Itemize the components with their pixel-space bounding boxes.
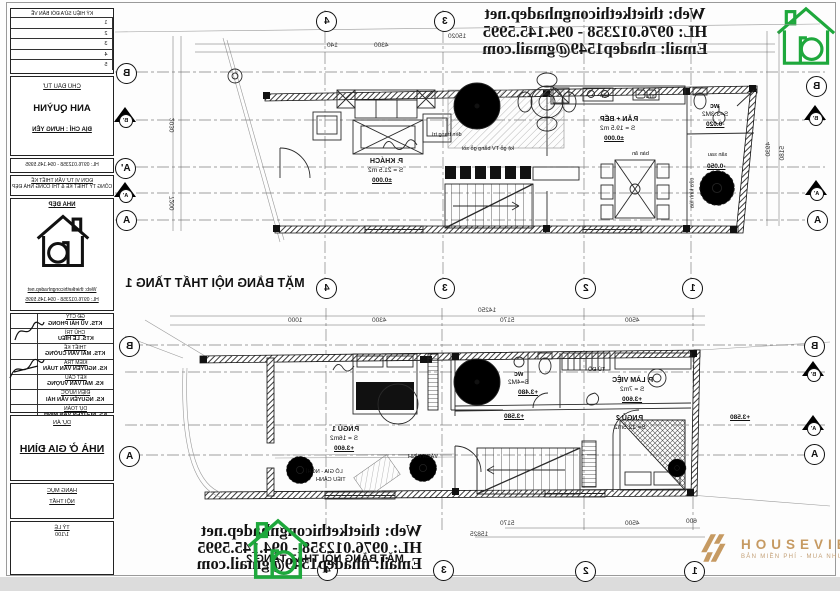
- houseviet-logo-icon: [698, 530, 734, 566]
- staircase: [445, 184, 533, 228]
- phone-strip-text: HL: 0976.012358 - 094.145.5995: [11, 159, 113, 168]
- dim-label: 5180: [780, 146, 787, 160]
- grid-bubble-label: 4: [324, 283, 330, 294]
- grid-bubble-label: 1: [690, 283, 696, 294]
- furniture-note: kệ gỗ TV bằng gỗ sồi: [462, 146, 514, 152]
- revision-table: KÝ HIỆU SỬA ĐỔI BẢN VẼ 1 2 3 4 5: [10, 8, 114, 74]
- room-label: P. LÀM VIỆC: [612, 377, 653, 385]
- grid-bubble-label: 4: [324, 16, 330, 27]
- room-area: S=4M2: [508, 379, 529, 387]
- category-value: NỘI THẤT: [11, 495, 113, 506]
- section-marker-label: A': [811, 426, 816, 432]
- grid-bubble-row: A: [119, 446, 140, 467]
- section-marker-label: A': [814, 191, 819, 197]
- project-box: DỰ ÁN NHÀ Ở GIA ĐÌNH: [10, 415, 114, 481]
- section-marker: A': [805, 180, 827, 198]
- grid-bubble-row: A: [807, 210, 828, 231]
- grid-bubble-col: 4: [316, 11, 337, 32]
- revision-row-number: 2: [100, 29, 113, 39]
- furniture-note: bàn ăn: [632, 151, 649, 157]
- courtyard-tree: [700, 171, 735, 206]
- grid-bubble-label: A: [814, 215, 821, 226]
- room-label: P.ĂN + BẾP: [600, 116, 638, 124]
- dim-label: 15020: [448, 34, 466, 41]
- dining-table-set: [601, 160, 669, 219]
- grid-bubble-label: 1: [692, 566, 698, 577]
- design-unit-label: ĐƠN VỊ TƯ VẤN THIẾT KẾ: [11, 176, 113, 184]
- green-house-logo-icon: [240, 517, 316, 581]
- furniture-note: rửa: [646, 94, 655, 100]
- grid-bubble-col: 4: [316, 278, 337, 299]
- section-marker: A': [114, 182, 136, 200]
- bottom-margin-band: [0, 577, 840, 591]
- grid-bubble-label: 2: [583, 566, 589, 577]
- grid-bubble-row: B: [806, 76, 827, 97]
- revision-row: 3: [11, 38, 113, 49]
- room-area: S = 16m2: [330, 435, 358, 443]
- grid-bubble-label: B: [811, 341, 818, 352]
- section-marker: B': [114, 107, 136, 125]
- grid-bubble-col: 2: [575, 278, 596, 299]
- room-label: sân sau: [708, 152, 727, 158]
- section-marker: B': [802, 361, 824, 379]
- dim-label: 15825: [470, 532, 488, 539]
- signature-scribble: [12, 316, 46, 346]
- section-marker-label: B': [813, 116, 818, 122]
- room-area: S = 19.5 m2: [600, 125, 635, 133]
- room-label: P. KHÁCH: [370, 158, 403, 166]
- level-marker: -0.050: [707, 163, 725, 171]
- room-label: LÔ GIA - NGHỈ: [306, 469, 343, 475]
- dim-label: 5170: [500, 521, 514, 528]
- signature-name: KTS. MAI VĂN CƯỜNG: [45, 351, 105, 358]
- grid-bubble-label: A: [123, 215, 130, 226]
- signature-name: KTS. VŨ HẢI PHONG: [48, 321, 102, 328]
- dim-label: 4500: [625, 521, 639, 528]
- phone-strip: HL: 0976.012358 - 094.145.5995: [10, 158, 114, 173]
- partition-note: VÁCH KÍNH: [408, 454, 438, 460]
- signature-name: KS. NGUYỄN VĂN TUẤN: [43, 366, 107, 373]
- section-marker-label: B': [811, 372, 816, 378]
- category-label: HẠNG MỤC: [11, 484, 113, 495]
- company-phone-line: HL: 0976.012358 - 094.145.5995: [11, 297, 113, 303]
- grid-bubble-row: B: [119, 336, 140, 357]
- grid-bubble-label: 2: [583, 283, 589, 294]
- dim-label: 4930: [766, 142, 773, 156]
- houseviet-watermark: HOUSEVIET BẢN MIỀN PHÍ - MUA NHƯ Ý: [698, 530, 840, 566]
- room-area: S= 12.5m2: [614, 424, 646, 432]
- project-label: DỰ ÁN: [11, 416, 113, 427]
- tv-shelf: [445, 166, 579, 180]
- level-marker: +3.600: [334, 445, 354, 453]
- room-area: S = 21.5 m2: [368, 167, 403, 175]
- floor-plan-tang-1: [115, 6, 840, 302]
- room-label: P.NGỦ 2: [616, 415, 643, 423]
- company-house-logo-icon: [36, 213, 90, 269]
- plan-title-tang-1: MẶT BẰNG NỘI THẤT TẦNG 1: [120, 277, 310, 291]
- grid-bubble-label: B: [123, 68, 130, 79]
- section-marker-label: A': [123, 193, 128, 199]
- level-marker: +3.600: [622, 396, 642, 404]
- grid-bubble-label: A: [811, 449, 818, 460]
- dim-label: 4300: [374, 43, 388, 50]
- spiral-stair-icon: [451, 354, 503, 410]
- design-unit-box: ĐƠN VỊ TƯ VẤN THIẾT KẾ CÔNG TY THIẾT KẾ …: [10, 175, 114, 196]
- bed-1: [333, 354, 438, 424]
- dim-label: 14250: [478, 308, 496, 315]
- grid-bubble-row: A: [116, 210, 137, 231]
- signature-name: KTS. LÊ HIẾU: [58, 336, 94, 343]
- investor-box: CHỦ ĐẦU TƯ ANH QUỲNH ĐỊA CHỈ : HƯNG YÊN: [10, 76, 114, 156]
- grid-bubble-col: 3: [434, 11, 455, 32]
- revision-row-number: 3: [100, 39, 113, 49]
- signature-name: KS. NGUYỄN VĂN HẢI: [46, 397, 104, 404]
- grid-bubble-row: B: [116, 63, 137, 84]
- contact-email: Email: nhadep1549@gmail.com: [8, 556, 422, 573]
- dim-label: 140: [327, 43, 338, 50]
- revision-row-number: 4: [100, 50, 113, 60]
- section-marker: A': [802, 415, 824, 433]
- furniture-note: TỦ ĐỒ: [588, 367, 605, 373]
- signature-row: ĐIỆN NƯỚCKS. NGUYỄN VĂN HẢI: [11, 389, 113, 404]
- level-marker: +3.580: [504, 413, 524, 421]
- dim-label: 600: [686, 519, 697, 526]
- grid-bubble-label: 3: [442, 283, 448, 294]
- company-logo-box: NHÀ ĐẸP Web: thietkethicongnhadep.net HL…: [10, 198, 114, 311]
- revision-row-number: 5: [100, 60, 113, 70]
- dim-label: 2030: [170, 118, 177, 132]
- level-marker: ±0.000: [372, 177, 392, 185]
- spiral-stair-icon: [448, 83, 564, 148]
- grid-bubble-label: 3: [441, 565, 447, 576]
- dim-label: 5170: [500, 318, 514, 325]
- section-marker-label: B': [123, 118, 128, 124]
- category-box: HẠNG MỤC NỘI THẤT: [10, 483, 114, 519]
- grid-bubble-label: A: [126, 451, 133, 462]
- grid-bubble-col: 2: [575, 561, 596, 582]
- grid-bubble-label: B: [126, 341, 133, 352]
- grid-bubble-label: 3: [442, 16, 448, 27]
- design-unit-name: CÔNG TY THIẾT KẾ & THI CÔNG NHÀ ĐẸP: [11, 184, 113, 190]
- grid-bubble-label: A': [121, 163, 131, 174]
- signature-name: KS. MAI VĂN VƯỢNG: [47, 381, 104, 388]
- houseviet-brand: HOUSEVIET: [741, 537, 840, 552]
- signature-scribble: [8, 352, 46, 384]
- dim-label: 4500: [625, 318, 639, 325]
- room-label: P.NGỦ 1: [332, 426, 359, 434]
- dim-label: 7200: [170, 196, 177, 210]
- grid-bubble-row: A: [804, 444, 825, 465]
- company-web-line: Web: thietkethicongnhadep.net: [11, 287, 113, 293]
- revision-row: 4: [11, 49, 113, 60]
- grid-bubble-col: 3: [434, 278, 455, 299]
- drawing-sheet: KÝ HIỆU SỬA ĐỔI BẢN VẼ 1 2 3 4 5 CHỦ ĐẦU…: [0, 0, 840, 591]
- dim-label: 1000: [288, 318, 302, 325]
- revision-row-number: 1: [100, 18, 113, 28]
- contact-block-bottom: Web: thietkethicongnhadep.net HL: 0976.0…: [8, 523, 422, 573]
- section-marker: B': [804, 105, 826, 123]
- company-brand: NHÀ ĐẸP: [11, 199, 113, 209]
- furniture-note: đèn trang trí: [432, 132, 462, 138]
- level-marker: +3.580: [730, 414, 750, 422]
- grid-bubble-col: 3: [433, 560, 454, 581]
- grid-bubble-row: A': [115, 158, 136, 179]
- houseviet-tagline: BẢN MIỀN PHÍ - MUA NHƯ Ý: [741, 554, 840, 560]
- door-note: cửa kính lùa: [690, 178, 696, 208]
- grid-bubble-row: B: [804, 336, 825, 357]
- dim-label: 4300: [372, 318, 386, 325]
- project-name: NHÀ Ở GIA ĐÌNH: [11, 427, 113, 455]
- grid-bubble-label: B: [813, 81, 820, 92]
- investor-name: ANH QUỲNH: [11, 91, 113, 114]
- revision-row: 2: [11, 28, 113, 39]
- room-label: TIỂU CẢNH: [316, 477, 346, 483]
- room-area: S = 7m2: [620, 386, 644, 394]
- staircase-2: [455, 441, 596, 494]
- revision-row: 1: [11, 17, 113, 28]
- investor-address: ĐỊA CHỈ : HƯNG YÊN: [11, 114, 113, 134]
- revision-row: 5: [11, 59, 113, 70]
- level-marker: -0.020: [706, 121, 724, 129]
- grid-bubble-col: 1: [682, 278, 703, 299]
- furniture-note: bếp: [600, 93, 609, 99]
- level-marker: ±0.000: [604, 135, 624, 143]
- level-marker: +3.480: [518, 389, 538, 397]
- room-area: S=3.3M2: [702, 111, 728, 119]
- investor-label: CHỦ ĐẦU TƯ: [11, 77, 113, 91]
- revision-header: KÝ HIỆU SỬA ĐỔI BẢN VẼ: [11, 9, 113, 17]
- porch-column-and-door: [228, 69, 310, 178]
